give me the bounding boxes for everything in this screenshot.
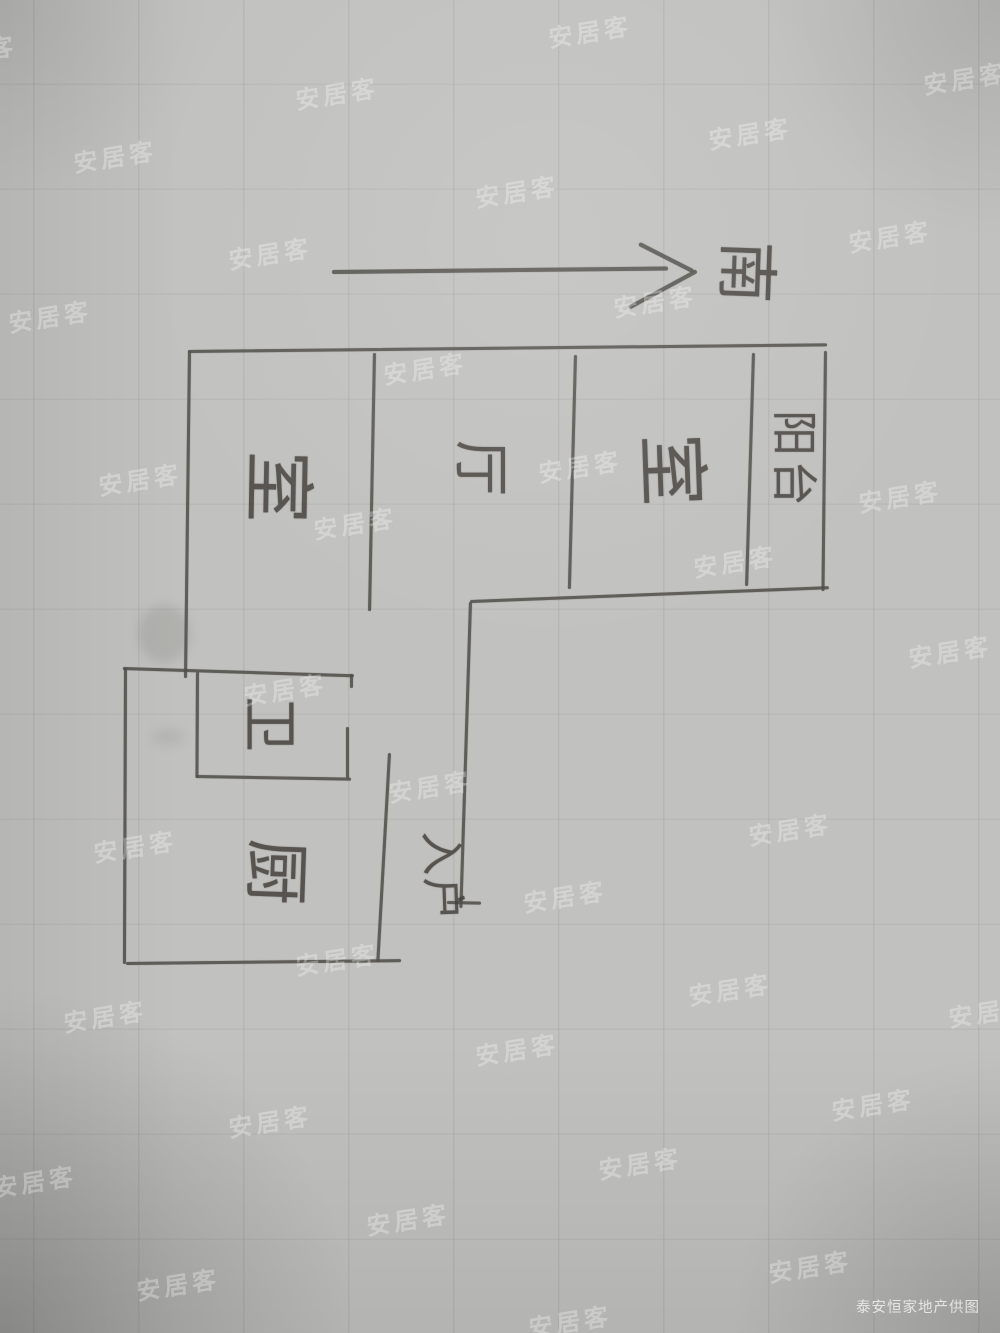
wall-mid-horizontal: [123, 667, 354, 677]
wall-bath-right: [346, 727, 349, 778]
wall-left: [184, 351, 191, 678]
room-label-bedroom-right: 室: [635, 433, 709, 507]
room-label-entrance: 入户: [417, 830, 464, 923]
wall-divider-bedroom-living: [368, 353, 376, 611]
wall-bath-right-stub: [350, 674, 353, 688]
wall-bath-bottom: [196, 775, 351, 781]
floorplan-photo: 南 室 厅 室 阳台 卫 厨 入户 安居客安居客安居客安居: [0, 0, 1000, 1333]
room-label-balcony: 阳台: [771, 410, 817, 510]
wall-kitchen-left: [123, 668, 127, 964]
room-label-kitchen: 厨: [241, 838, 309, 906]
wall-bottom-upper-block: [470, 586, 829, 603]
room-label-bedroom-left: 室: [241, 450, 314, 523]
wall-divider-balcony: [745, 353, 755, 586]
wall-right: [821, 351, 827, 591]
agency-credit: 泰安恒家地产供图: [856, 1296, 980, 1317]
wall-kitchen-bottom: [126, 959, 401, 965]
wall-kitchen-right: [376, 753, 391, 962]
wall-divider-living-bedroom: [568, 355, 577, 589]
room-label-living-room: 厅: [451, 440, 507, 496]
room-label-bathroom: 卫: [240, 696, 296, 752]
wall-top: [188, 343, 827, 353]
wall-bath-left: [195, 672, 199, 778]
floor-plan: 室 厅 室 阳台 卫 厨 入户: [0, 0, 1000, 1333]
